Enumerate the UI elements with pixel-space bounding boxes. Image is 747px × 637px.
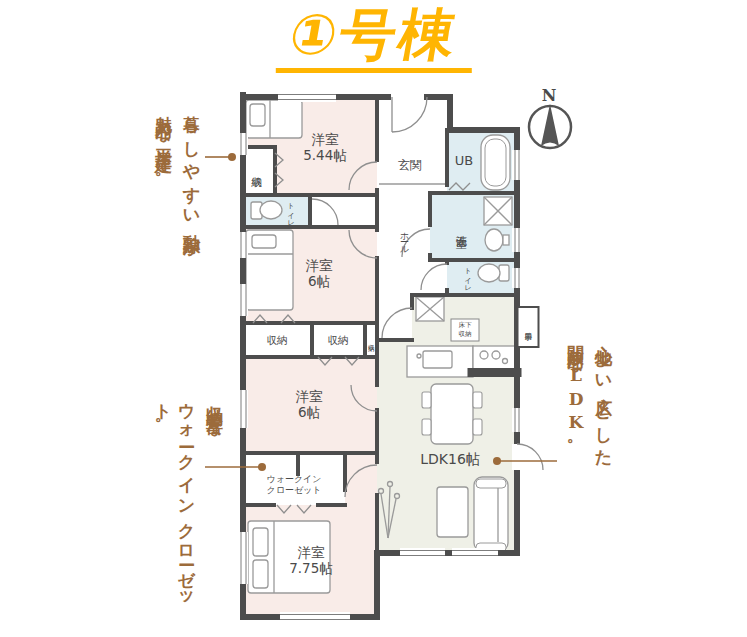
sofa-icon (474, 477, 508, 552)
refrigerator-icon (416, 297, 444, 321)
annotation-layout: 暮らしやすい動線が 魅力的な平屋建て。 (148, 102, 209, 250)
bed-icon (246, 100, 302, 138)
washing-machine-icon (484, 197, 512, 225)
annotation-line: 収納豊富な (204, 392, 227, 637)
stove-icon (473, 346, 517, 369)
annotation-line: 開放的なLDK。 (565, 332, 588, 461)
toilet-icon (251, 201, 282, 219)
annotation-ldk: 心地よい広々とした 開放的なLDK。 (560, 332, 621, 461)
annotation-line: 魅力的な平屋建て。 (153, 102, 176, 250)
annotation-line: 暮らしやすい動線が (181, 102, 204, 250)
annotation-line: ウォークインクローゼット。 (153, 392, 199, 637)
coffee-table-icon (437, 487, 468, 537)
bed-icon (248, 521, 330, 593)
compass-north-label: N (542, 86, 557, 105)
underfloor-storage-box (451, 319, 479, 341)
kitchen-counter-icon (407, 346, 473, 377)
dining-table-icon (422, 384, 482, 444)
floor-plan-svg (0, 0, 747, 637)
compass-icon (529, 104, 571, 148)
annotation-storage: 収納豊富な ウォークインクローゼット。 (148, 392, 232, 637)
toilet-icon (478, 264, 509, 282)
bed-icon (246, 230, 293, 310)
back-door-box (518, 307, 539, 347)
page-title-text: ①号棟 (284, 4, 463, 66)
floor-plan-page: ①号棟 暮らしやすい動線が 魅力的な平屋建て。 収納豊富な ウォークインクローゼ… (0, 0, 747, 637)
bathtub-icon (481, 135, 510, 190)
annotation-line: 心地よい広々とした (593, 332, 616, 461)
page-title: ①号棟 (275, 4, 471, 73)
